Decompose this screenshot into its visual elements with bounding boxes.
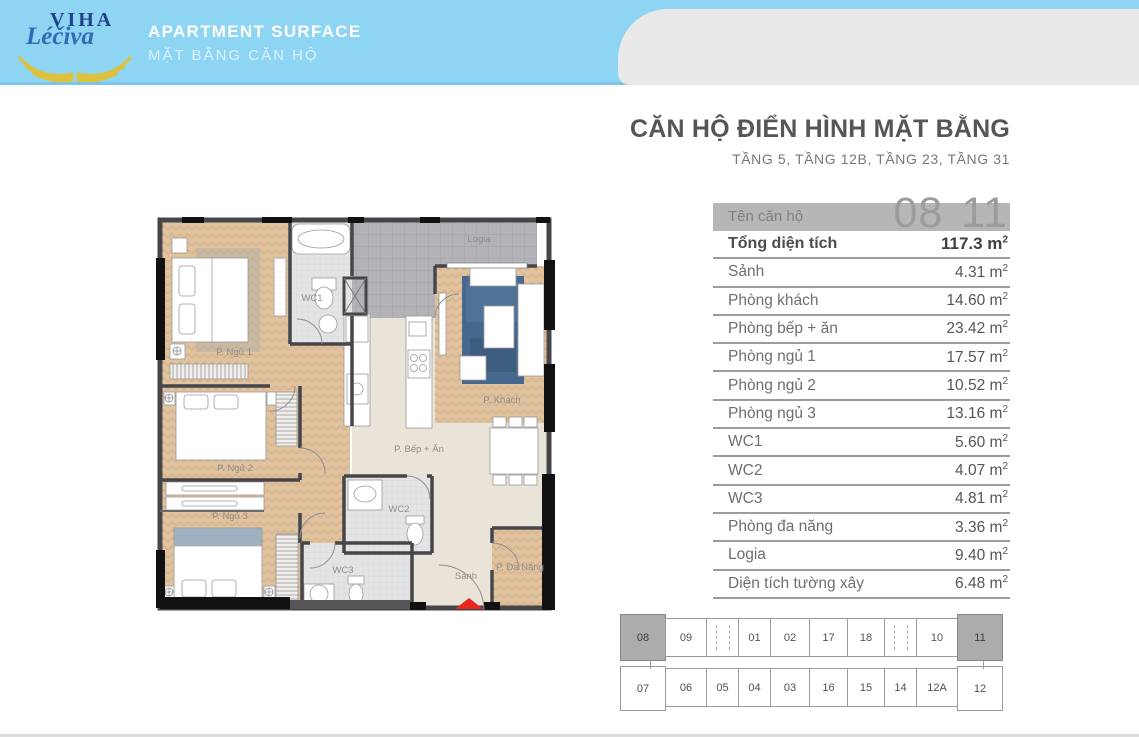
- table-row: Phòng ngủ 117.57 m2: [713, 344, 1010, 372]
- logo-text-leciva: Léčiva: [26, 23, 94, 51]
- area-label: WC3: [728, 490, 762, 508]
- minimap-unit-01[interactable]: 01: [738, 618, 771, 657]
- page-title: APARTMENT SURFACE: [148, 22, 362, 42]
- table-row: Sảnh4.31 m2: [713, 259, 1010, 287]
- area-label: Phòng ngủ 1: [728, 348, 816, 366]
- floorplan: P. Ngủ 1WC1LogiaP. KháchP. Bếp + ĂnP. Ng…: [152, 198, 572, 618]
- minimap-shaft: [706, 618, 739, 657]
- minimap-unit-17[interactable]: 17: [809, 618, 848, 657]
- area-label: Logia: [728, 546, 766, 564]
- table-row: Tổng diện tích117.3 m2: [713, 231, 1010, 259]
- minimap-shaft: [884, 618, 917, 657]
- room-label: P. Ngủ 2: [217, 463, 253, 474]
- area-value: 4.81 m2: [955, 489, 1008, 508]
- area-label: WC2: [728, 462, 762, 480]
- area-value: 6.48 m2: [955, 574, 1008, 593]
- corridor-connector: [983, 661, 984, 669]
- area-label: Phòng ngủ 3: [728, 405, 816, 423]
- minimap-unit-label: 12A: [927, 682, 947, 694]
- table-row: Phòng khách14.60 m2: [713, 288, 1010, 316]
- minimap-unit-label: 08: [637, 632, 649, 644]
- area-label: Diện tích tường xây: [728, 575, 864, 593]
- room-label: Logia: [467, 234, 491, 245]
- minimap-unit-label: 07: [637, 683, 649, 695]
- area-value: 13.16 m2: [946, 404, 1008, 423]
- room-label: P. Đa Năng: [496, 562, 544, 573]
- area-value: 14.60 m2: [946, 291, 1008, 310]
- area-label: Phòng ngủ 2: [728, 377, 816, 395]
- room-label: Sảnh: [455, 571, 477, 582]
- area-label: WC1: [728, 433, 762, 451]
- area-value: 4.31 m2: [955, 263, 1008, 282]
- minimap-unit-06[interactable]: 06: [665, 668, 707, 707]
- area-value: 4.07 m2: [955, 461, 1008, 480]
- room-label: P. Khách: [483, 395, 520, 406]
- area-value: 23.42 m2: [946, 319, 1008, 338]
- room-label: WC3: [332, 565, 353, 576]
- table-row: Phòng ngủ 313.16 m2: [713, 401, 1010, 429]
- table-row: WC24.07 m2: [713, 457, 1010, 485]
- area-value: 117.3 m2: [941, 234, 1008, 254]
- area-label: Sảnh: [728, 263, 764, 281]
- minimap-unit-label: 04: [748, 682, 760, 694]
- room-label: WC1: [301, 293, 322, 304]
- area-value: 3.36 m2: [955, 518, 1008, 537]
- minimap-unit-label: 03: [784, 682, 796, 694]
- table-row: Logia9.40 m2: [713, 542, 1010, 570]
- minimap-unit-15[interactable]: 15: [847, 668, 885, 707]
- area-label: Phòng đa năng: [728, 518, 833, 536]
- table-row: WC34.81 m2: [713, 486, 1010, 514]
- minimap-unit-11[interactable]: 11: [957, 614, 1003, 661]
- minimap-unit-label: 16: [822, 682, 834, 694]
- minimap-unit-07[interactable]: 07: [620, 666, 666, 711]
- viha-leciva-logo: VIHA Léčiva: [16, 6, 134, 82]
- area-label: Phòng bếp + ăn: [728, 320, 838, 338]
- table-row: Phòng ngủ 210.52 m2: [713, 372, 1010, 400]
- area-table: Tổng diện tích117.3 m2Sảnh4.31 m2Phòng k…: [713, 231, 1010, 599]
- corridor-connector: [650, 661, 651, 669]
- minimap-unit-label: 02: [784, 632, 796, 644]
- floor-minimap: 0809010217181011 070605040316151412A12: [620, 614, 1012, 716]
- minimap-unit-04[interactable]: 04: [738, 668, 771, 707]
- minimap-unit-18[interactable]: 18: [847, 618, 885, 657]
- minimap-unit-label: 06: [680, 682, 692, 694]
- minimap-unit-label: 17: [822, 632, 834, 644]
- table-row: Phòng đa năng3.36 m2: [713, 514, 1010, 542]
- minimap-unit-05[interactable]: 05: [706, 668, 739, 707]
- minimap-unit-label: 01: [748, 632, 760, 644]
- minimap-unit-label: 09: [680, 632, 692, 644]
- area-label: Phòng khách: [728, 292, 819, 310]
- minimap-top-row: 0809010217181011: [620, 614, 1003, 661]
- minimap-unit-09[interactable]: 09: [665, 618, 707, 657]
- minimap-unit-10[interactable]: 10: [916, 618, 958, 657]
- header-tab-shape: [618, 9, 1139, 85]
- apartment-floors-subtitle: TẦNG 5, TẦNG 12B, TẦNG 23, TẦNG 31: [620, 151, 1010, 167]
- area-value: 5.60 m2: [955, 433, 1008, 452]
- minimap-unit-08[interactable]: 08: [620, 614, 666, 661]
- header-band: VIHA Léčiva APARTMENT SURFACE MẶT BẰNG C…: [0, 0, 1139, 85]
- laurel-wings-icon: [16, 50, 134, 82]
- area-label: Tổng diện tích: [728, 235, 837, 253]
- area-value: 17.57 m2: [946, 348, 1008, 367]
- unit-number-2: 11: [961, 192, 1008, 235]
- minimap-unit-12[interactable]: 12: [957, 666, 1003, 711]
- area-value: 9.40 m2: [955, 546, 1008, 565]
- table-row: Diện tích tường xây6.48 m2: [713, 571, 1010, 599]
- minimap-unit-label: 10: [931, 632, 943, 644]
- minimap-unit-03[interactable]: 03: [770, 668, 810, 707]
- room-label: P. Bếp + Ăn: [394, 444, 444, 455]
- minimap-unit-label: 14: [894, 682, 906, 694]
- page-subtitle: MẶT BẰNG CĂN HỘ: [148, 47, 319, 64]
- unit-numbers: 08 11: [894, 192, 1008, 235]
- apartment-title: CĂN HỘ ĐIỂN HÌNH MẶT BẰNG: [620, 115, 1010, 144]
- minimap-unit-16[interactable]: 16: [809, 668, 848, 707]
- minimap-unit-02[interactable]: 02: [770, 618, 810, 657]
- minimap-unit-14[interactable]: 14: [884, 668, 917, 707]
- table-row: WC15.60 m2: [713, 429, 1010, 457]
- minimap-bottom-row: 070605040316151412A12: [620, 666, 1003, 711]
- minimap-unit-label: 12: [974, 683, 986, 695]
- minimap-unit-label: 15: [860, 682, 872, 694]
- area-value: 10.52 m2: [946, 376, 1008, 395]
- minimap-unit-label: 05: [716, 682, 728, 694]
- unit-name-bar: Tên căn hộ 08 11: [713, 203, 1010, 231]
- room-label: P. Ngủ 3: [212, 511, 248, 522]
- room-label: WC2: [388, 504, 409, 515]
- table-row: Phòng bếp + ăn23.42 m2: [713, 316, 1010, 344]
- unit-number-1: 08: [894, 192, 944, 235]
- minimap-unit-12A[interactable]: 12A: [916, 668, 958, 707]
- minimap-unit-label: 18: [860, 632, 872, 644]
- minimap-unit-label: 11: [974, 632, 985, 644]
- room-label: P. Ngủ 1: [216, 347, 252, 358]
